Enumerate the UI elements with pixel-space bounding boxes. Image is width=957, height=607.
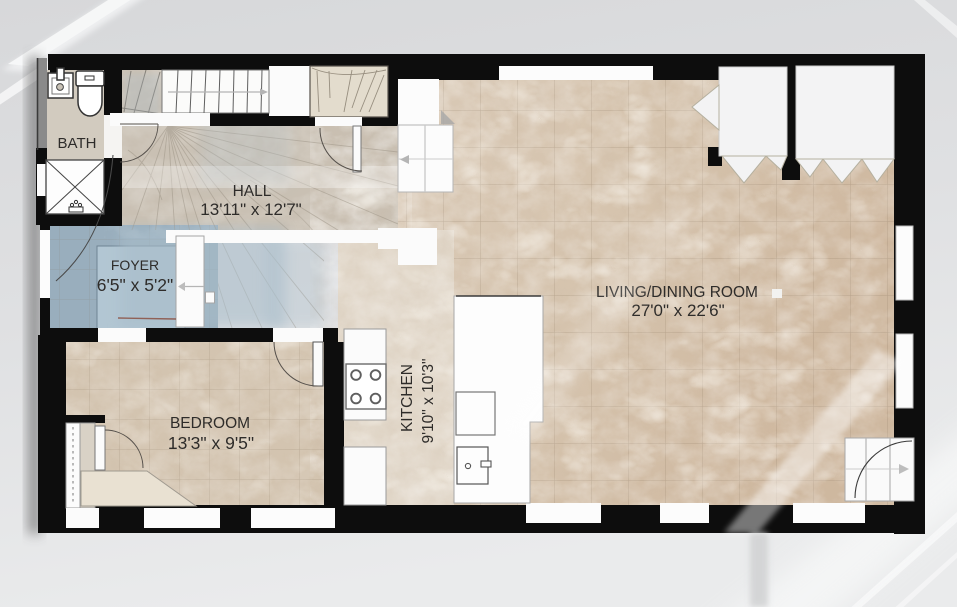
- svg-text:9'10" x 10'3": 9'10" x 10'3": [420, 358, 437, 443]
- svg-text:KITCHEN: KITCHEN: [399, 364, 416, 432]
- svg-text:HALL: HALL: [233, 183, 272, 200]
- svg-text:27'0" x 22'6": 27'0" x 22'6": [631, 301, 724, 320]
- svg-text:13'3" x 9'5": 13'3" x 9'5": [168, 433, 254, 453]
- svg-text:BATH: BATH: [58, 135, 97, 152]
- svg-text:BEDROOM: BEDROOM: [170, 415, 250, 432]
- svg-text:FOYER: FOYER: [111, 257, 159, 273]
- svg-text:13'11" x 12'7": 13'11" x 12'7": [200, 200, 301, 219]
- svg-text:6'5" x 5'2": 6'5" x 5'2": [97, 275, 174, 295]
